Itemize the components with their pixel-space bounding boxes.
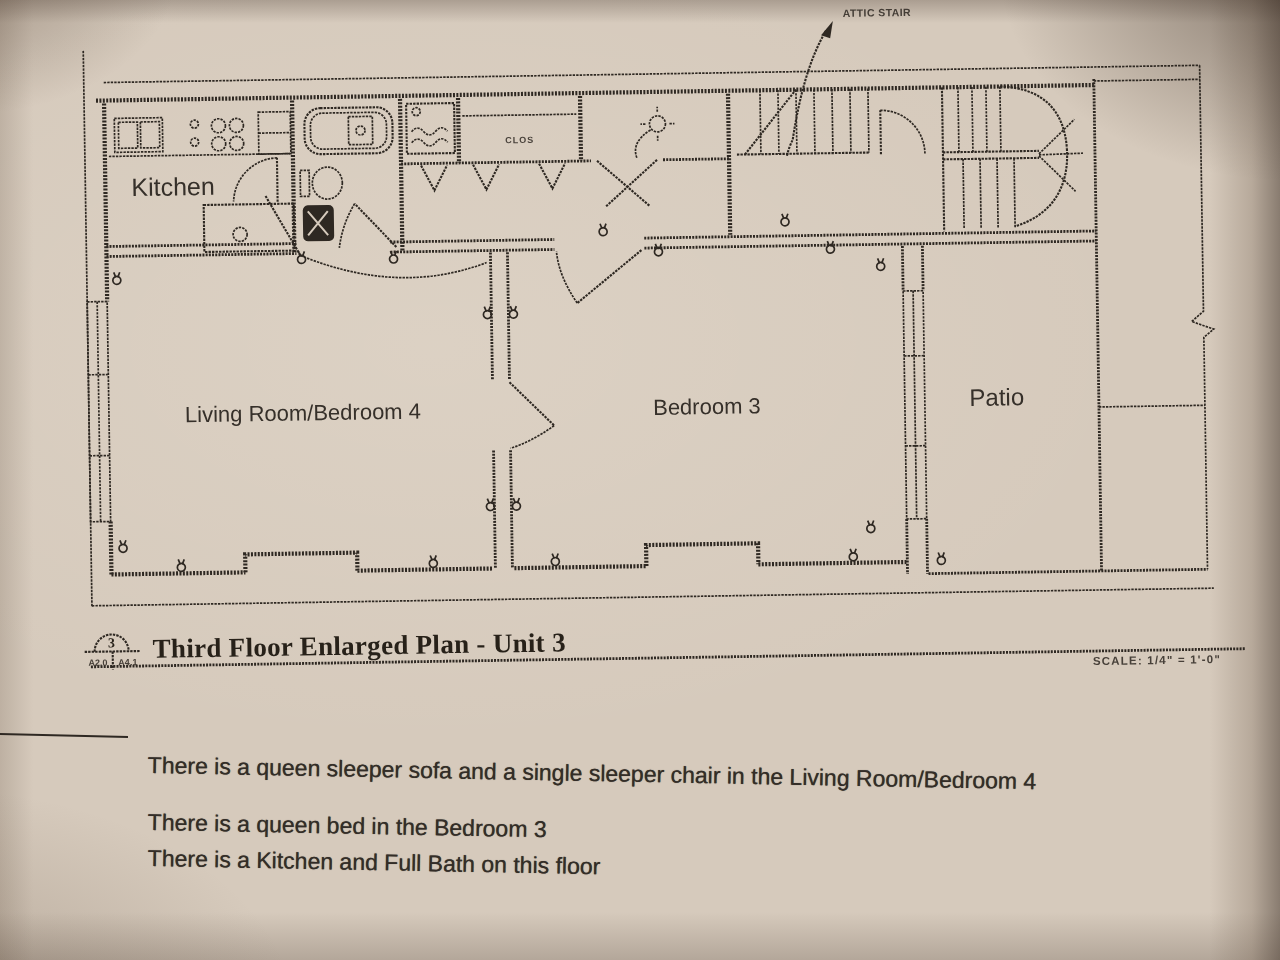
closet-shelf-line [462,114,576,116]
ceiling-light-icon [635,107,675,159]
scale-note: SCALE: 1/4" = 1'-0" [1093,653,1221,667]
bathroom-fixtures [299,107,396,248]
kitchen-sink-icon [114,118,163,153]
callout-number: 3 [108,635,116,650]
bathtub-icon [304,107,393,154]
living-room-label: Living Room/Bedroom 4 [185,399,421,428]
bedroom3-patio-windows [903,291,927,519]
attic-stair-treads [736,89,869,155]
bath-door-swing [339,203,397,248]
coat-hook-marks [421,163,565,190]
attic-stair-note: ATTIC STAIR [843,6,911,19]
bedroom3-entry-door-swing [556,250,642,303]
refrigerator-icon [258,112,291,154]
title-block: 3 A2.0 A4.1 Third Floor Enlarged Plan - … [84,617,1245,683]
patio-label: Patio [969,383,1024,411]
toilet-icon [300,167,342,200]
bedroom-connecting-door-swing [509,382,554,449]
kitchen-counter [109,154,291,157]
bath-sink-icon [303,205,335,241]
washer-dryer-icon [406,103,455,154]
outlet-symbols [112,211,945,577]
drawing-title: Third Floor Enlarged Plan - Unit 3 [152,627,566,663]
lower-stair-treads [942,85,1084,231]
utility-closets [406,100,679,450]
hall-door-leaves [597,160,658,207]
page-under-edge-line [0,734,128,737]
kitchen-label: Kitchen [131,172,215,201]
stairs [735,17,1084,234]
landing-door-swing [880,110,925,155]
bedroom3-label: Bedroom 3 [653,393,761,420]
kitchen-door-swing [233,158,278,203]
living-room-entry-door-swing [266,193,487,280]
stove-burners-icon [190,118,243,151]
plan-sheet: Kitchen Living Room/Bedroom 4 Bedroom 3 … [75,1,1245,683]
closet-label: CLOS [505,135,534,145]
floor-plan-photo: Kitchen Living Room/Bedroom 4 Bedroom 3 … [0,0,1280,960]
